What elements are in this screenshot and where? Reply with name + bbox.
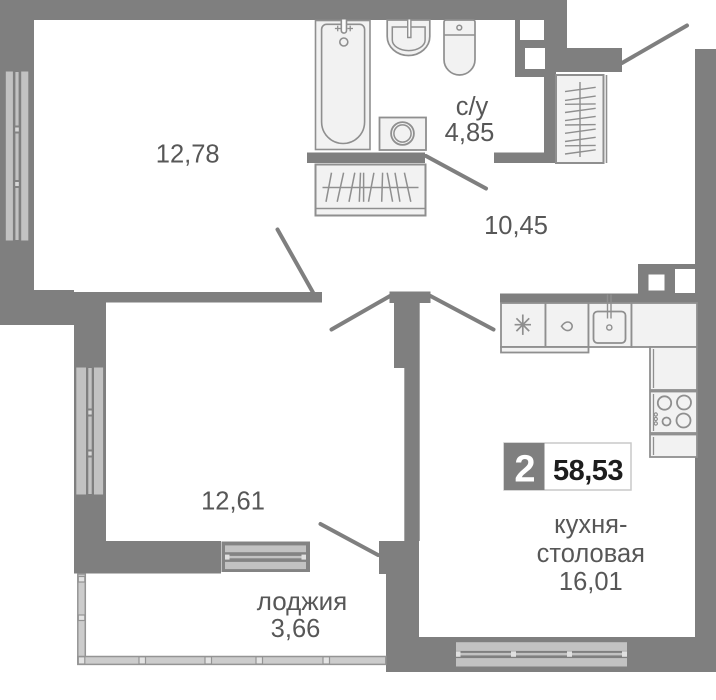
svg-text:4,85: 4,85 (445, 119, 495, 147)
svg-text:кухня-: кухня- (554, 511, 627, 539)
svg-text:58,53: 58,53 (553, 455, 623, 487)
svg-text:12,78: 12,78 (156, 141, 220, 169)
svg-text:3,66: 3,66 (271, 615, 321, 643)
svg-text:лоджия: лоджия (257, 586, 348, 616)
svg-text:10,45: 10,45 (484, 212, 548, 240)
svg-text:с/у: с/у (456, 93, 489, 121)
svg-text:2: 2 (514, 449, 535, 491)
svg-text:16,01: 16,01 (559, 568, 623, 596)
svg-text:столовая: столовая (537, 540, 645, 568)
svg-text:12,61: 12,61 (201, 488, 265, 516)
